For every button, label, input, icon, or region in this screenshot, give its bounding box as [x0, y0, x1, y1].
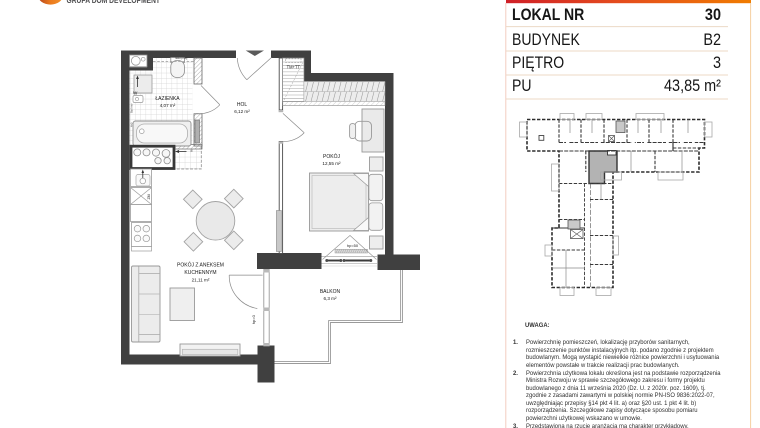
svg-text:hp=0: hp=0: [251, 314, 256, 324]
svg-text:niski próg: niski próg: [175, 56, 188, 60]
svg-text:POKÓJ: POKÓJ: [323, 153, 340, 160]
svg-text:ŁAZIENKA: ŁAZIENKA: [155, 96, 180, 102]
svg-text:4,07 m²: 4,07 m²: [160, 103, 176, 108]
svg-text:HOL: HOL: [237, 102, 248, 108]
svg-text:POKÓJ Z ANEKSEM: POKÓJ Z ANEKSEM: [177, 262, 224, 269]
svg-text:6,3 m²: 6,3 m²: [323, 296, 336, 301]
svg-text:21,11 m²: 21,11 m²: [192, 278, 210, 283]
svg-text:GRUPA DOM DEVELOPMENT: GRUPA DOM DEVELOPMENT: [67, 0, 161, 5]
svg-text:BALKON: BALKON: [320, 289, 341, 295]
svg-text:6,12 m²: 6,12 m²: [234, 109, 250, 114]
svg-text:Bpd mw: Bpd mw: [129, 104, 133, 113]
svg-text:KUCHENNYM: KUCHENNYM: [184, 270, 216, 276]
svg-text:W: W: [133, 91, 138, 96]
svg-text:TM+TT: TM+TT: [287, 64, 301, 69]
svg-text:12,55 m²: 12,55 m²: [322, 161, 341, 166]
svg-text:ZM: ZM: [147, 194, 151, 199]
svg-text:hp=50: hp=50: [347, 243, 359, 248]
